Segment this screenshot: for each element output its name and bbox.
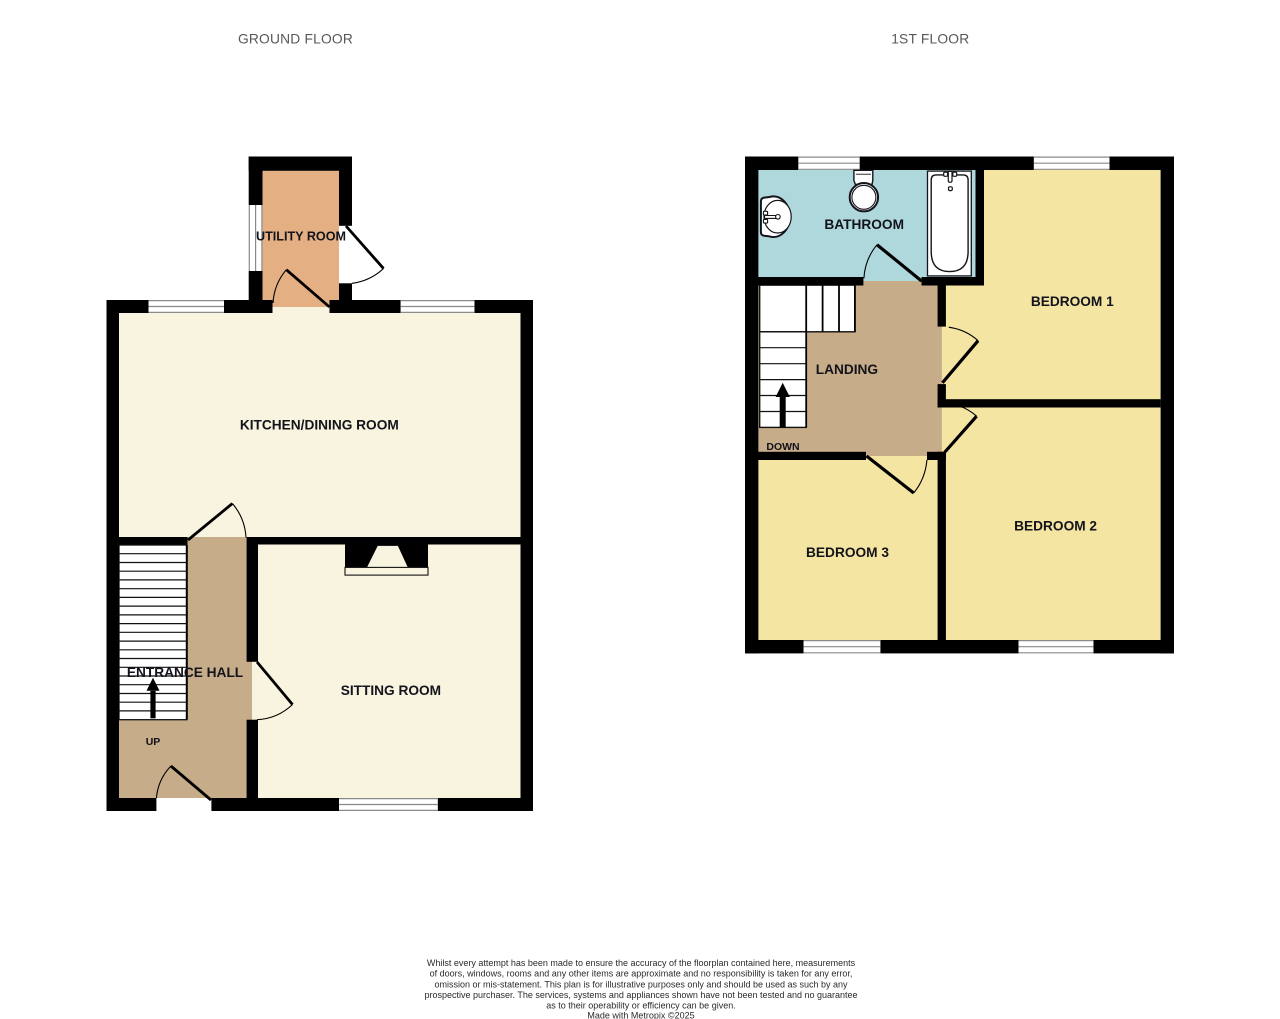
svg-text:of doors, windows, rooms and a: of doors, windows, rooms and any other i… [430,969,853,979]
svg-text:omission or mis-statement. Thi: omission or mis-statement. This plan is … [434,980,848,990]
svg-text:Whilst every attempt has been: Whilst every attempt has been made to en… [427,958,856,968]
svg-text:GROUND FLOOR: GROUND FLOOR [238,32,353,47]
svg-text:1ST FLOOR: 1ST FLOOR [891,32,969,47]
svg-text:as to their operability or eff: as to their operability or efficiency ca… [546,1001,735,1011]
svg-text:UTILITY ROOM: UTILITY ROOM [256,230,346,244]
svg-text:LANDING: LANDING [816,362,878,377]
svg-text:BEDROOM 1: BEDROOM 1 [1031,294,1114,309]
svg-text:ENTRANCE HALL: ENTRANCE HALL [127,665,243,680]
svg-text:BEDROOM 2: BEDROOM 2 [1014,519,1097,534]
svg-text:Made with Metropix ©2025: Made with Metropix ©2025 [587,1011,694,1019]
svg-text:BEDROOM 3: BEDROOM 3 [806,545,889,560]
svg-text:UP: UP [146,736,161,748]
svg-text:SITTING ROOM: SITTING ROOM [341,683,441,698]
svg-text:prospective purchaser. The ser: prospective purchaser. The services, sys… [424,990,857,1000]
svg-text:BATHROOM: BATHROOM [824,217,904,232]
svg-text:DOWN: DOWN [766,441,799,453]
svg-text:KITCHEN/DINING ROOM: KITCHEN/DINING ROOM [240,418,399,433]
